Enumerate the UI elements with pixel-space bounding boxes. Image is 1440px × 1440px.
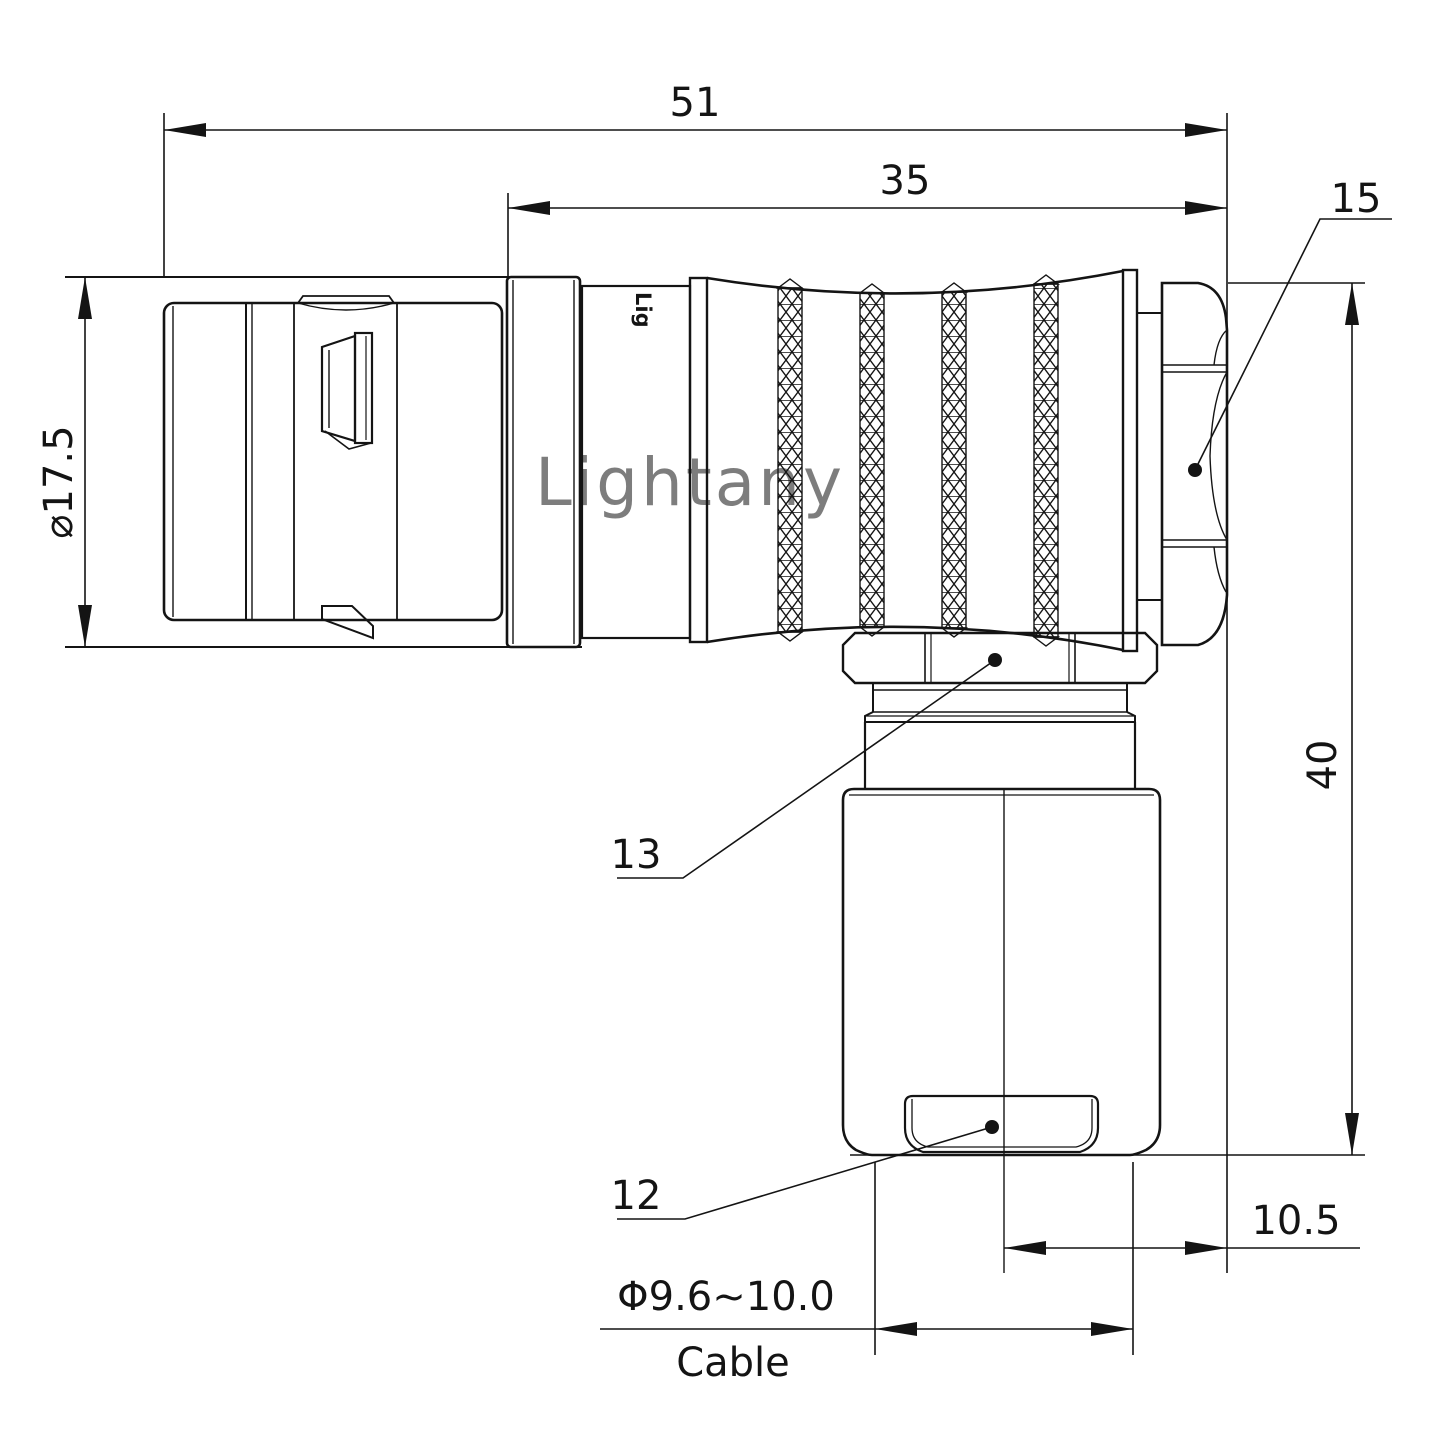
dimension-height [850,283,1365,1155]
dimension-cable-diameter [600,1162,1133,1355]
leader-coupling-nut [1188,219,1392,477]
technical-drawing-page: Lightany Lig [0,0,1440,1440]
knurl-band [778,279,802,641]
leader-cable-cap [617,1120,999,1219]
knurl-band [1034,275,1058,646]
part-label-cable-cap: 12 [611,1173,662,1219]
part-label-gland-nut: 13 [611,832,662,878]
connector-drawing: Lightany Lig [0,0,1440,1440]
elbow-neck [865,683,1135,789]
dimension-grip-length [508,193,1227,277]
plug-shell [65,277,582,647]
strain-relief-sleeve [843,789,1160,1273]
part-label-coupling-nut: 15 [1331,176,1382,222]
dim-height-text: 40 [1300,740,1346,791]
dim-offset-text: 10.5 [1251,1198,1340,1244]
latch-tab [322,606,373,638]
brand-engraving-text: Lig [631,292,655,328]
dim-cable-diameter-text: Φ9.6~10.0 [617,1274,835,1320]
cable-label-text: Cable [676,1340,790,1386]
dimension-overall-length [164,113,1227,1273]
leader-gland-nut [617,653,1002,878]
dim-overall-length-text: 51 [670,80,721,126]
dim-grip-length-text: 35 [880,158,931,204]
coupling-nut [1137,283,1227,645]
knurl-band [860,284,884,636]
knurl-band [942,283,966,637]
dim-shell-diameter-text: ⌀17.5 [36,425,82,538]
latch-window [322,333,372,449]
